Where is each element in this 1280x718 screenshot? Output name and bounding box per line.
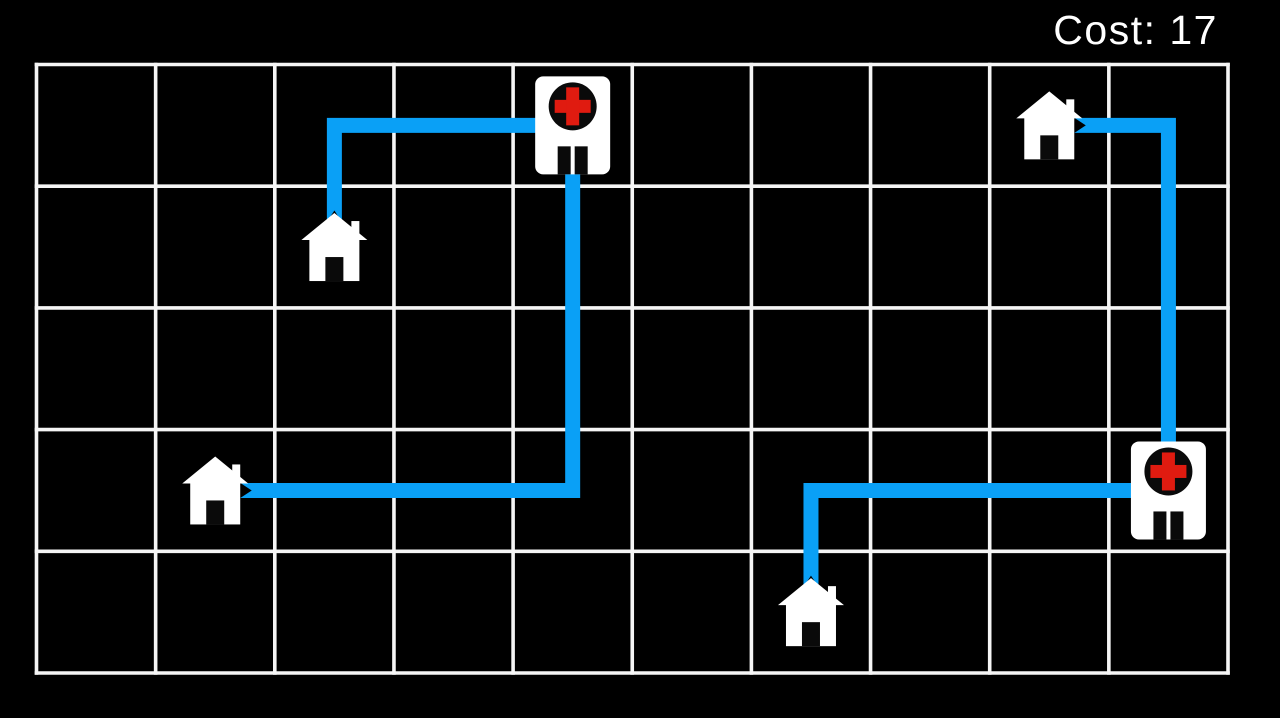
hospital-door bbox=[1170, 511, 1183, 539]
hospital-door bbox=[1153, 511, 1166, 539]
hospital-cross-icon bbox=[1162, 452, 1175, 490]
game-screen: Cost: 17 bbox=[0, 0, 1280, 718]
house-icon[interactable] bbox=[182, 456, 248, 524]
hospital-door bbox=[558, 146, 571, 174]
house-door bbox=[802, 622, 820, 646]
cost-display: Cost: 17 bbox=[1053, 7, 1218, 53]
house-door bbox=[325, 257, 343, 281]
hospital-cross-icon bbox=[566, 87, 579, 125]
board[interactable] bbox=[0, 0, 1280, 718]
house-icon[interactable] bbox=[301, 213, 367, 281]
house-icon[interactable] bbox=[1016, 91, 1082, 159]
hospital-icon[interactable] bbox=[1131, 441, 1206, 539]
hud: Cost: 17 bbox=[1053, 8, 1218, 53]
house-icon[interactable] bbox=[778, 578, 844, 646]
hospital-icon[interactable] bbox=[535, 76, 610, 174]
house-door bbox=[1040, 135, 1058, 159]
hospital-door bbox=[575, 146, 588, 174]
house-door bbox=[206, 500, 224, 524]
